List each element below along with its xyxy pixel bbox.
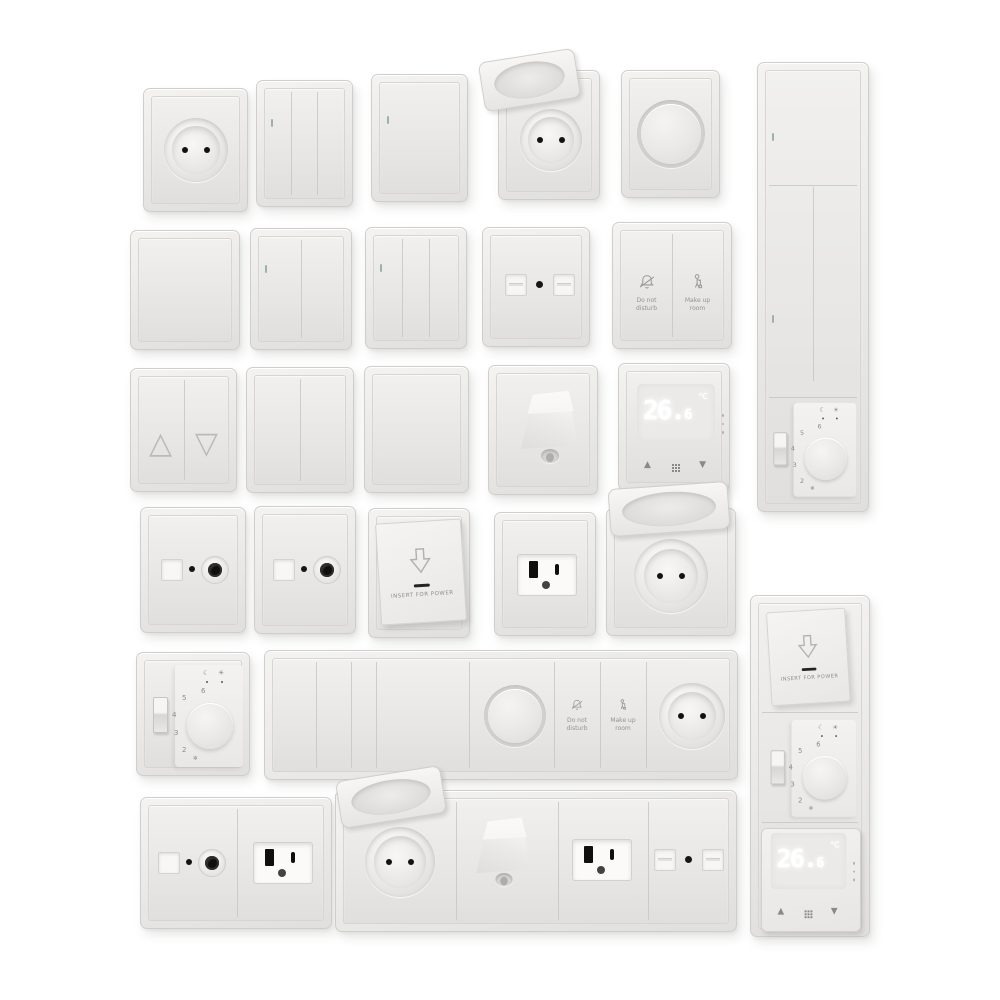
plate-shutter-switch-1: △ ▽ <box>130 368 237 492</box>
dial-thermostat: ☾ ☀ 6 5 4 3 2 ❄ <box>145 663 245 769</box>
dial-number: 6 <box>816 741 820 749</box>
insert-arrow-icon <box>795 632 821 661</box>
frost-icon: ❄ <box>809 805 814 812</box>
indicator-dot <box>221 681 223 683</box>
thermostat-toggle[interactable] <box>773 432 787 465</box>
eu-socket <box>164 118 228 182</box>
lid-inner-recess <box>349 774 433 820</box>
neutral-slot <box>265 849 274 866</box>
make-up-room-rocker[interactable]: Make up room <box>672 231 723 340</box>
cable-grommet <box>541 449 559 463</box>
us-outlet <box>572 839 630 879</box>
plate-eu-socket-lid-1 <box>498 70 600 200</box>
plate-blank-1 <box>130 230 240 350</box>
strip-panel-1: Do not disturb Ma <box>264 650 738 780</box>
cable-grommet <box>495 873 512 886</box>
dial-number: 6 <box>818 423 822 430</box>
socket-lid[interactable] <box>607 481 730 537</box>
moon-icon: ☾ <box>818 724 824 732</box>
mount-dot <box>301 566 307 572</box>
divider <box>646 662 647 768</box>
outlet-recess <box>253 842 313 884</box>
coax-connector <box>201 556 229 584</box>
rocker-face[interactable] <box>264 88 345 199</box>
plate-digital-thermostat-1: 26.6 °C ▲ ▼ <box>618 363 730 491</box>
us-outlet <box>517 554 575 594</box>
frost-icon: ❄ <box>193 755 198 762</box>
plate-face <box>490 235 582 339</box>
label-line: Make up <box>610 717 635 724</box>
do-not-disturb-icon <box>569 697 585 713</box>
do-not-disturb-label: Do not disturb <box>621 297 672 313</box>
temperature-unit: °C <box>698 392 708 401</box>
hot-slot <box>610 849 614 860</box>
socket-pin-hole <box>679 573 685 579</box>
socket-pin-hole <box>182 147 188 153</box>
socket-well <box>668 692 717 741</box>
make-up-room-icon <box>687 271 709 293</box>
mount-dot <box>189 566 195 572</box>
label-line: disturb <box>636 305 657 312</box>
divider <box>558 802 559 920</box>
plate-face <box>148 805 324 921</box>
label-line: Do not <box>567 717 587 724</box>
up-triangle-icon: △ <box>149 429 172 459</box>
vent-dots <box>853 856 855 887</box>
plate-face <box>629 78 712 190</box>
plate-us-outlet-1 <box>494 512 596 636</box>
plate-eu-socket-1 <box>143 88 248 212</box>
socket-pin-hole <box>657 573 663 579</box>
cable-outlet <box>466 815 542 899</box>
plate-face <box>502 520 588 628</box>
digital-thermostat: 26.6 °C ▲ ▼ <box>626 378 726 484</box>
dial-number: 5 <box>800 430 804 437</box>
outlet-recess <box>572 839 632 881</box>
lid-inner-recess <box>492 57 568 104</box>
dial-thermostat: ☾ ☀ 6 5 4 3 2 ❄ <box>763 718 858 819</box>
temp-minor: 6 <box>816 855 824 871</box>
thermostat-toggle[interactable] <box>771 750 785 784</box>
status-led <box>265 265 267 273</box>
eu-socket <box>520 109 582 171</box>
shutter-down-rocker[interactable]: ▽ <box>184 377 229 483</box>
rocker-wide-2[interactable] <box>376 659 469 771</box>
make-up-room-label: Make up room <box>672 297 723 313</box>
socket-well <box>172 126 219 173</box>
thermostat-display: 26.6 °C <box>637 384 715 442</box>
digital-thermostat-module: 26.6 °C ▲ ▼ <box>761 828 861 932</box>
card-led-slot <box>414 583 430 587</box>
plate-switch-2gang-1 <box>250 228 352 350</box>
tv-coax-socket <box>158 844 228 884</box>
neutral-slot <box>529 561 538 578</box>
menu-button[interactable] <box>672 464 674 466</box>
panel-tall-1: ☾ ☀ 6 5 4 3 2 ❄ <box>757 62 869 512</box>
plate-face <box>496 373 590 487</box>
data-socket-pair <box>505 274 575 296</box>
plate-eu-socket-lid-2 <box>606 508 736 636</box>
rocker-face[interactable] <box>379 82 460 194</box>
shutter-up-rocker[interactable]: △ <box>139 377 184 483</box>
socket-pin-hole <box>204 147 210 153</box>
tv-coax-socket <box>161 551 231 591</box>
socket-pin-hole <box>386 859 392 865</box>
keycard-holder: INSERT FOR POWER <box>766 610 849 711</box>
cable-outlet <box>510 388 590 476</box>
dial-number: 3 <box>791 781 795 789</box>
render-canvas: ☾ ☀ 6 5 4 3 2 ❄ <box>0 0 1000 1000</box>
temp-up-button[interactable]: ▲ <box>644 461 651 470</box>
rocker-face[interactable] <box>254 375 346 485</box>
rocker-face[interactable] <box>372 374 461 485</box>
plate-tv-socket-2 <box>254 506 356 634</box>
insert-for-power-label: INSERT FOR POWER <box>380 589 464 600</box>
rocker-face[interactable] <box>373 235 459 341</box>
data-port <box>702 849 724 871</box>
plate-data-socket-1 <box>482 227 590 347</box>
dial-number: 5 <box>798 747 802 755</box>
mount-dot <box>536 281 543 288</box>
label-line: Make up <box>685 297 710 304</box>
plate-tv-socket-1 <box>140 507 246 633</box>
divider <box>300 379 301 481</box>
data-port <box>505 274 527 296</box>
module-port <box>158 852 180 874</box>
plate-dnd-switch-1: Do not disturb Ma <box>612 222 732 349</box>
eu-socket <box>634 539 708 613</box>
socket-pin-hole <box>700 713 706 719</box>
socket-pin-hole <box>408 859 414 865</box>
do-not-disturb-label: Do not disturb <box>554 717 600 733</box>
plate-dial-thermostat-1: ☾ ☀ 6 5 4 3 2 ❄ <box>136 652 250 776</box>
divider <box>762 822 858 823</box>
digital-thermostat: 26.6 °C ▲ ▼ <box>760 827 857 930</box>
strip-panel-2 <box>335 790 737 932</box>
down-triangle-icon: ▽ <box>195 429 218 459</box>
plate-face: INSERT FOR POWER <box>376 516 462 630</box>
rocker-narrow-2[interactable] <box>351 659 376 771</box>
panel-face: INSERT FOR POWER ☾ ☀ 6 5 4 3 2 ❄ <box>758 603 862 929</box>
data-port <box>654 849 676 871</box>
temp-main: 26. <box>643 396 684 426</box>
label-line: disturb <box>566 725 587 732</box>
temperature-value: 26.6 <box>776 844 824 873</box>
eu-socket <box>659 683 725 749</box>
temp-main: 26. <box>776 844 816 873</box>
eu-socket <box>365 827 435 897</box>
dial-number: 5 <box>182 694 186 702</box>
dimmer-knob[interactable] <box>488 689 542 743</box>
divider <box>402 239 403 337</box>
rocker-face[interactable] <box>258 236 344 342</box>
plate-switch-2gang-2 <box>246 367 354 493</box>
divider <box>291 92 292 195</box>
make-up-room-icon <box>615 697 631 713</box>
panel-tall-2: INSERT FOR POWER ☾ ☀ 6 5 4 3 2 ❄ <box>750 595 870 937</box>
insert-arrow-icon <box>406 545 434 577</box>
divider <box>317 92 318 195</box>
thermostat-dial-knob[interactable] <box>803 756 847 800</box>
plate-switch-3gang-1 <box>256 80 353 207</box>
divider <box>301 240 302 338</box>
plate-switch-3gang-2 <box>365 227 467 349</box>
temperature-value: 26.6 <box>643 396 692 426</box>
coax-connector <box>198 849 226 877</box>
coax-connector <box>313 556 341 584</box>
us-outlet <box>253 842 311 882</box>
outlet-recess <box>517 554 577 596</box>
plate-face <box>148 515 238 625</box>
insert-for-power-label: INSERT FOR POWER <box>771 673 848 683</box>
strip-face: Do not disturb Ma <box>272 658 730 772</box>
do-not-disturb-icon <box>636 271 658 293</box>
module-port <box>161 559 183 581</box>
plate-double-1 <box>140 797 332 929</box>
label-line: Do not <box>636 297 656 304</box>
dial-number: 6 <box>201 687 205 695</box>
socket-pin-hole <box>678 713 684 719</box>
moon-icon: ☾ <box>203 669 209 677</box>
status-led <box>380 264 382 272</box>
dial-number: 4 <box>172 711 176 719</box>
divider <box>762 712 858 713</box>
plate-dimmer-1 <box>621 70 720 198</box>
indicator-dot <box>822 418 824 420</box>
plate-keycard-1: INSERT FOR POWER <box>368 508 470 638</box>
dial-number: 4 <box>791 445 795 452</box>
temp-down-button[interactable]: ▼ <box>831 908 838 917</box>
dial-number: 2 <box>798 797 802 805</box>
plate-face <box>151 96 240 204</box>
divider <box>769 185 857 186</box>
plate-face: Do not disturb Ma <box>620 230 724 341</box>
frost-icon: ❄ <box>810 486 815 492</box>
keycard-slot-panel[interactable]: INSERT FOR POWER <box>766 608 851 706</box>
make-up-room-rocker[interactable]: Make up room <box>600 659 646 771</box>
hot-slot <box>291 852 295 863</box>
thermostat-display: 26.6 °C <box>771 833 847 889</box>
indicator-dot <box>206 681 208 683</box>
card-led-slot <box>802 667 817 671</box>
ground-hole <box>278 869 286 877</box>
dimmer-ring <box>637 100 705 168</box>
lid-inner-recess <box>621 489 717 529</box>
tv-coax-socket <box>273 551 343 591</box>
panel-face: ☾ ☀ 6 5 4 3 2 ❄ <box>765 70 861 504</box>
thermostat-toggle[interactable] <box>153 697 168 733</box>
plate-cable-outlet-1 <box>488 365 598 495</box>
dial-number: 2 <box>800 477 804 484</box>
keycard-slot-panel[interactable]: INSERT FOR POWER <box>375 518 467 625</box>
make-up-room-label: Make up room <box>600 717 646 733</box>
data-socket-pair <box>654 849 724 871</box>
dial-number: 3 <box>793 462 797 469</box>
dimmer-knob[interactable] <box>641 104 701 164</box>
socket-well <box>644 549 699 604</box>
dial-number: 3 <box>174 729 178 737</box>
do-not-disturb-rocker[interactable]: Do not disturb <box>621 231 672 340</box>
label-line: room <box>690 305 706 312</box>
status-led <box>271 119 273 127</box>
rocker-narrow-1[interactable] <box>316 659 351 771</box>
socket-well <box>528 117 574 163</box>
temp-up-button[interactable]: ▲ <box>777 908 784 917</box>
plate-face: △ ▽ <box>138 376 229 484</box>
divider <box>237 809 238 917</box>
divider <box>769 397 857 398</box>
vertical-rocker-left[interactable] <box>766 187 813 395</box>
dimmer-ring <box>484 685 546 747</box>
ground-hole <box>542 581 550 589</box>
socket-pin-hole <box>559 137 565 143</box>
vent-dots <box>722 408 725 440</box>
dial-number: 4 <box>789 764 793 772</box>
thermostat-dial-knob[interactable] <box>805 438 847 480</box>
temp-down-button[interactable]: ▼ <box>699 461 706 470</box>
menu-button[interactable] <box>805 910 807 912</box>
plate-face: ☾ ☀ 6 5 4 3 2 ❄ <box>144 660 242 768</box>
sun-icon: ☀ <box>218 669 224 677</box>
divider <box>469 662 470 768</box>
label-line: room <box>615 725 631 732</box>
dial-thermostat: ☾ ☀ 6 5 4 3 2 ❄ <box>766 401 858 499</box>
ground-hole <box>597 866 605 874</box>
plate-face <box>262 514 348 626</box>
mount-dot <box>685 856 692 863</box>
plate-face: 26.6 °C ▲ ▼ <box>626 371 722 483</box>
vertical-rocker-right[interactable] <box>813 187 860 395</box>
rocker-wide-1[interactable] <box>273 659 316 771</box>
blank-face <box>138 238 232 342</box>
temp-minor: 6 <box>684 407 692 423</box>
moon-icon: ☾ <box>819 407 825 414</box>
sun-icon: ☀ <box>832 724 838 732</box>
socket-well <box>374 836 426 888</box>
indicator-dot <box>836 418 838 420</box>
socket-pin-hole <box>537 137 543 143</box>
divider <box>648 802 649 920</box>
dial-number: 2 <box>182 746 186 754</box>
divider <box>456 802 457 920</box>
large-rocker[interactable] <box>766 71 860 185</box>
status-led <box>387 116 389 124</box>
plate-switch-1gang-2 <box>364 366 469 493</box>
sun-icon: ☀ <box>833 407 839 414</box>
data-port <box>553 274 575 296</box>
indicator-dot <box>821 735 823 737</box>
thermostat-dial-knob[interactable] <box>187 703 233 749</box>
temperature-unit: °C <box>830 841 839 850</box>
divider <box>429 239 430 337</box>
neutral-slot <box>584 846 593 863</box>
module-port <box>273 559 295 581</box>
hot-slot <box>555 564 559 575</box>
do-not-disturb-rocker[interactable]: Do not disturb <box>554 659 600 771</box>
indicator-dot <box>835 735 837 737</box>
mount-dot <box>186 859 192 865</box>
plate-switch-1gang-1 <box>371 74 468 202</box>
keycard-holder: INSERT FOR POWER <box>375 521 465 631</box>
